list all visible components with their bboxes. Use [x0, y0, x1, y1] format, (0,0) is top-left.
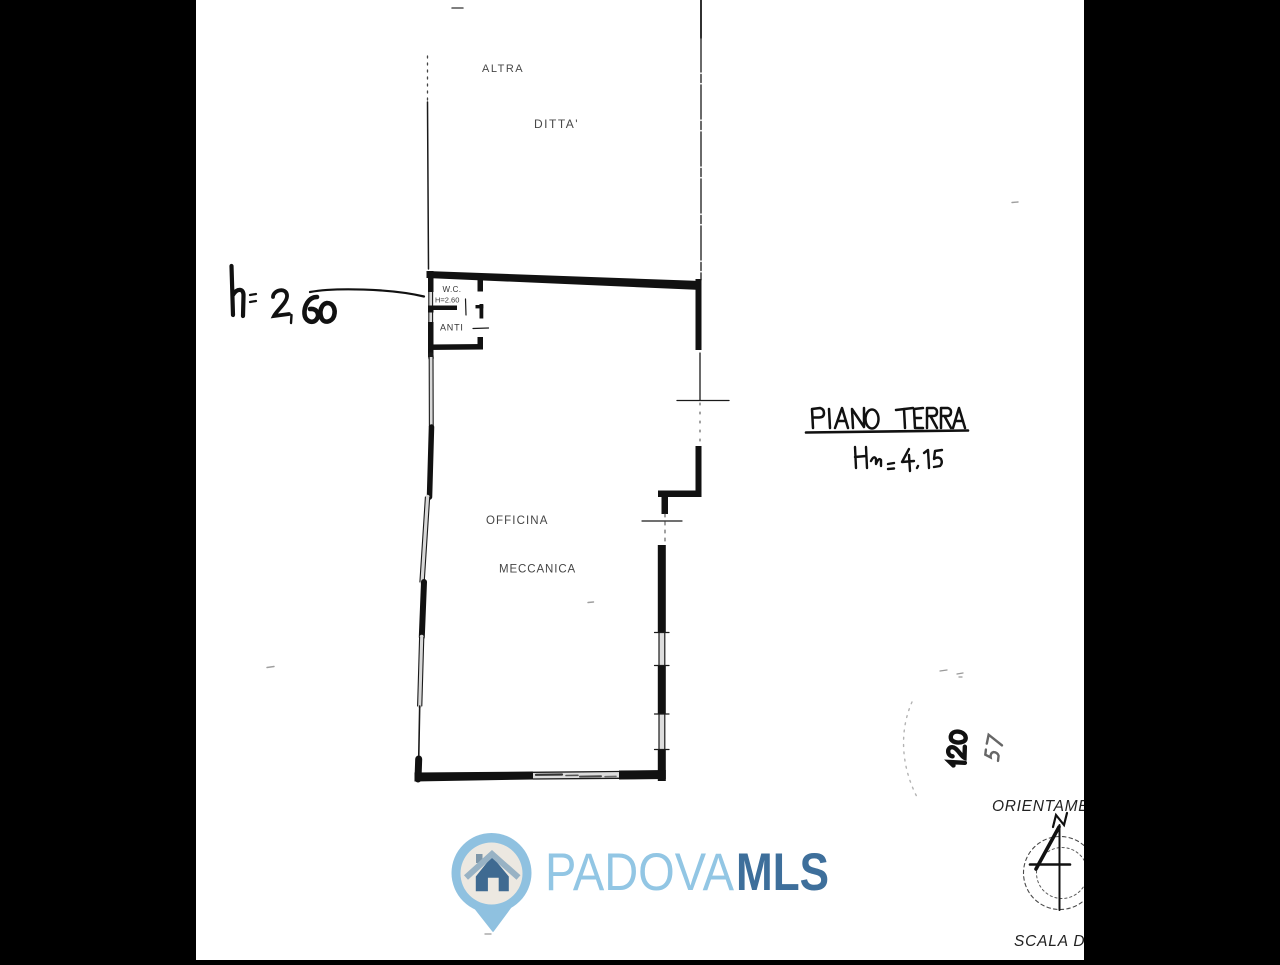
- svg-text:OFFICINA: OFFICINA: [486, 515, 548, 527]
- svg-text:ANTI: ANTI: [440, 323, 464, 333]
- svg-text:ALTRA: ALTRA: [482, 63, 524, 75]
- svg-text:PADOVA: PADOVA: [545, 843, 735, 902]
- svg-text:H=2.60: H=2.60: [435, 296, 459, 305]
- svg-text:SCALA DI: SCALA DI: [1014, 933, 1084, 950]
- svg-text:MLS: MLS: [736, 843, 829, 902]
- svg-text:MECCANICA: MECCANICA: [499, 564, 576, 576]
- svg-text:W.C.: W.C.: [443, 285, 462, 294]
- svg-text:DITTA': DITTA': [534, 117, 579, 131]
- svg-text:ORIENTAMEN: ORIENTAMEN: [992, 798, 1084, 815]
